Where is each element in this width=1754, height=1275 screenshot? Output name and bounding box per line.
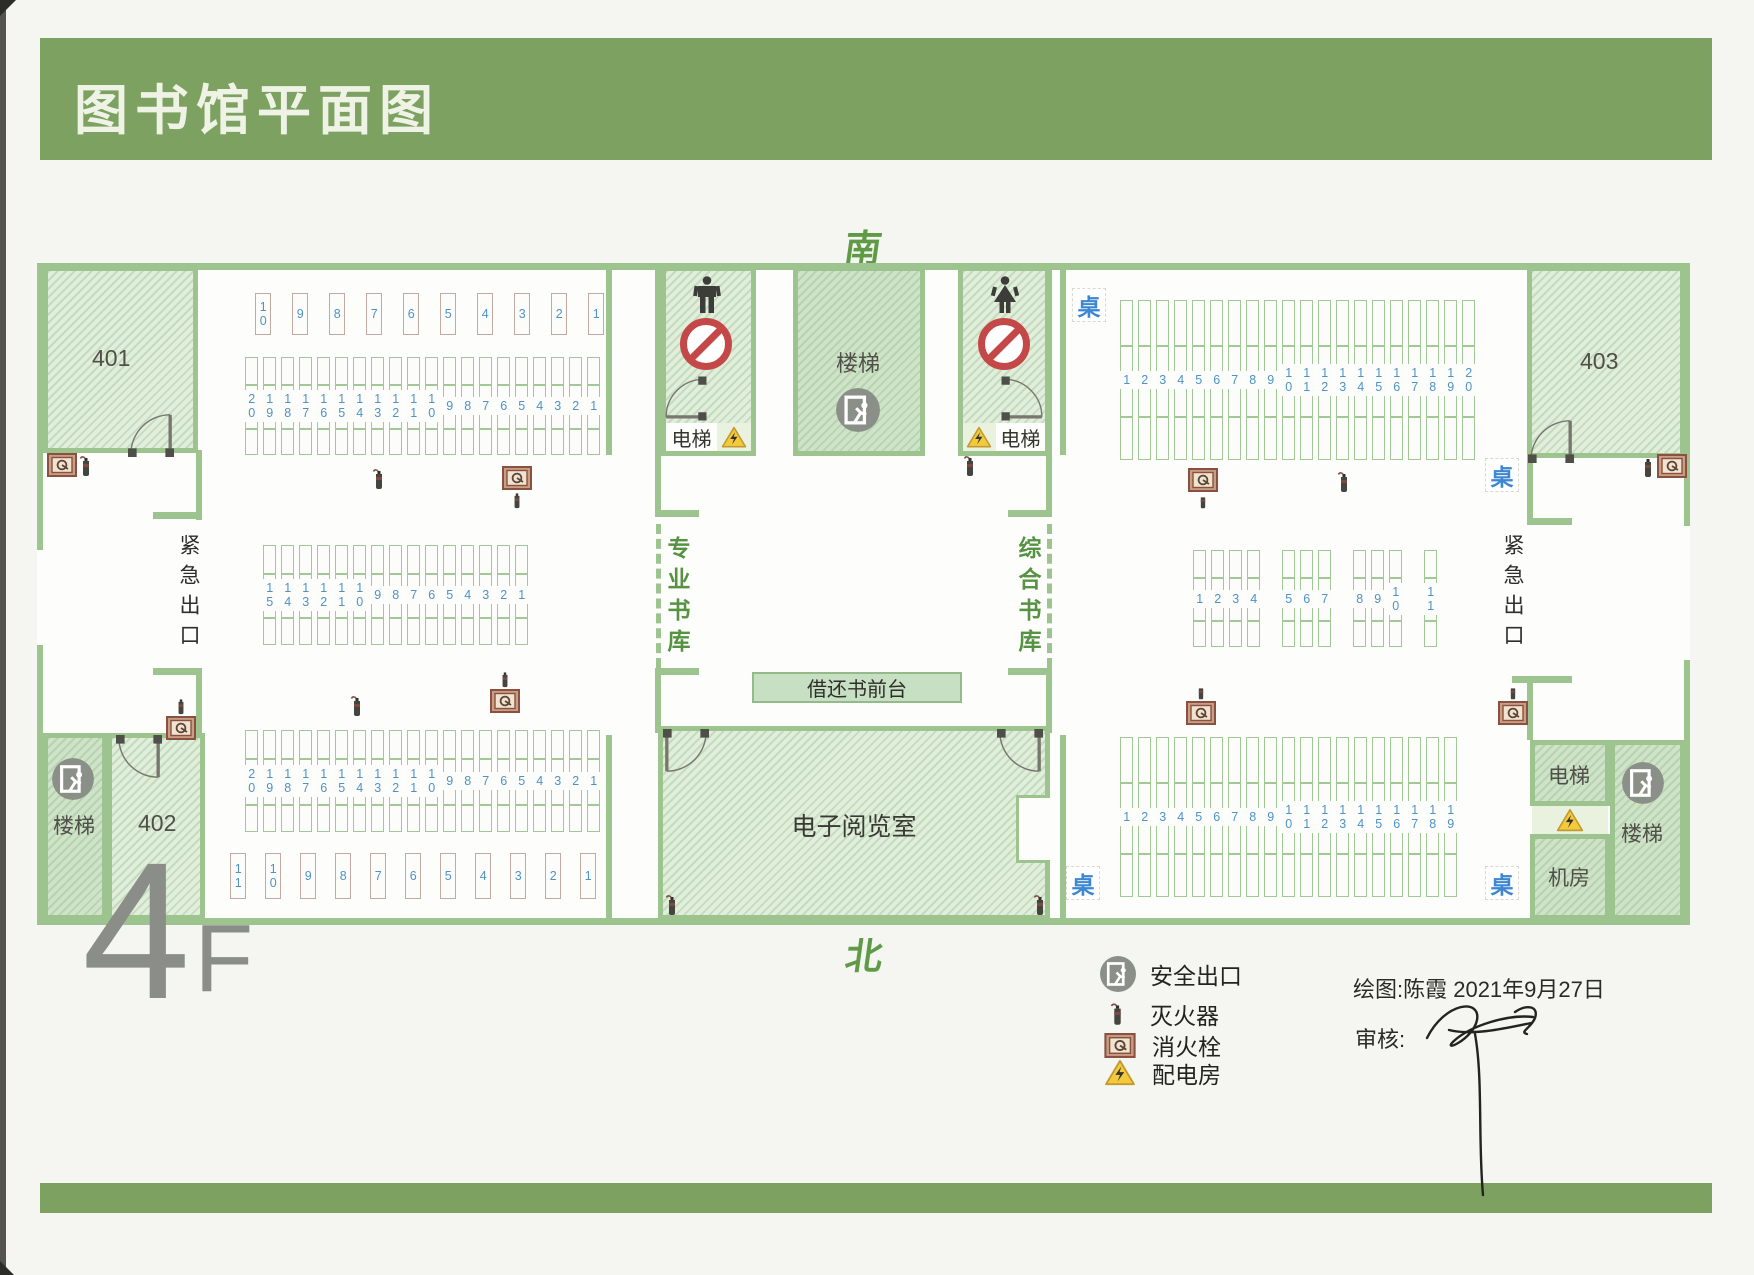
bookshelf-number: 2 bbox=[497, 586, 510, 604]
door-icon bbox=[116, 735, 162, 786]
bookshelf-19: 19 bbox=[1444, 300, 1457, 460]
bookshelf-number: 11 bbox=[1300, 364, 1313, 396]
bookshelf-number: 2 bbox=[569, 397, 582, 415]
bookshelf-8: 8 bbox=[1246, 737, 1259, 897]
bookshelf-number: 2 bbox=[1138, 808, 1151, 826]
bookshelf-2: 2 bbox=[1138, 737, 1151, 897]
bookshelf-number: 9 bbox=[371, 586, 384, 604]
bookshelf-number: 3 bbox=[1229, 590, 1242, 608]
right-shelf-row-1: 1234567891011121314151617181920 bbox=[1120, 300, 1475, 460]
bookshelf-number: 12 bbox=[1318, 364, 1331, 396]
bookshelf-15: 15 bbox=[263, 545, 276, 645]
bookshelf-7: 7 bbox=[370, 853, 386, 899]
left-wing-inner-wall-upper bbox=[606, 263, 612, 455]
bookshelf-number: 2 bbox=[569, 772, 582, 790]
fire-extinguisher-icon bbox=[510, 491, 524, 509]
female-icon bbox=[990, 276, 1020, 314]
bookshelf-number: 18 bbox=[1426, 801, 1439, 833]
bookshelf-number: 15 bbox=[1372, 801, 1385, 833]
left-corridor-wall-3 bbox=[153, 668, 202, 675]
bookshelf-3: 3 bbox=[1156, 300, 1169, 460]
bookshelf-11: 11 bbox=[1424, 550, 1437, 647]
bookshelf-number: 7 bbox=[407, 586, 420, 604]
bookshelf-number: 19 bbox=[263, 765, 276, 797]
bookshelf-number: 3 bbox=[516, 305, 529, 323]
bookshelf-11: 11 bbox=[1300, 300, 1313, 460]
bookshelf-number: 7 bbox=[1318, 590, 1331, 608]
bookshelf-number: 9 bbox=[302, 867, 315, 885]
bookshelf-number: 3 bbox=[1156, 371, 1169, 389]
bookshelf-16: 16 bbox=[317, 730, 330, 832]
right-shelf-row-2: 1234567891011 bbox=[1193, 550, 1437, 647]
left-shelf-row-3: 151413121110987654321 bbox=[263, 545, 528, 645]
bookshelf-number: 13 bbox=[299, 579, 312, 611]
fire-hydrant-icon bbox=[1188, 468, 1218, 492]
bookshelf-number: 14 bbox=[353, 765, 366, 797]
bookshelf-9: 9 bbox=[292, 293, 308, 335]
bookshelf-number: 11 bbox=[335, 579, 348, 611]
bookshelf-number: 6 bbox=[497, 772, 510, 790]
safety-exit-icon bbox=[1622, 762, 1664, 804]
bookshelf-number: 5 bbox=[1282, 590, 1295, 608]
fire-extinguisher-icon bbox=[498, 670, 512, 688]
scan-corner-bottom bbox=[0, 1261, 14, 1275]
fire-hydrant-icon bbox=[1498, 701, 1528, 725]
fire-hydrant-icon bbox=[47, 453, 77, 477]
legend-item-extinguisher: 灭火器 bbox=[1110, 997, 1219, 1031]
bookshelf-number: 17 bbox=[299, 390, 312, 422]
bookshelf-number: 20 bbox=[245, 765, 258, 797]
bookshelf-number: 8 bbox=[461, 772, 474, 790]
bookshelf-9: 9 bbox=[300, 853, 316, 899]
bookshelf-16: 16 bbox=[317, 357, 330, 455]
bookshelf-number: 10 bbox=[425, 390, 438, 422]
bookshelf-number: 16 bbox=[1390, 364, 1403, 396]
bookshelf-10: 10 bbox=[425, 357, 438, 455]
table-chip-nw: 桌 bbox=[1485, 458, 1519, 492]
left-shelf-row-bottom: 1110987654321 bbox=[230, 853, 596, 899]
bookshelf-number: 1 bbox=[515, 586, 528, 604]
bookshelf-number: 14 bbox=[281, 579, 294, 611]
elevator-left-label: 电梯 bbox=[666, 423, 717, 451]
bookshelf-5: 5 bbox=[515, 730, 528, 832]
elevator-right-label: 电梯 bbox=[996, 423, 1045, 451]
bookshelf-number: 4 bbox=[533, 397, 546, 415]
bookshelf-number: 1 bbox=[1120, 808, 1133, 826]
bookshelf-number: 4 bbox=[479, 305, 492, 323]
bookshelf-number: 4 bbox=[1247, 590, 1260, 608]
power-warning-icon bbox=[1556, 808, 1584, 833]
bookshelf-6: 6 bbox=[1210, 300, 1223, 460]
bookshelf-3: 3 bbox=[510, 853, 526, 899]
emergency-exit-label-east: 紧急出口 bbox=[178, 534, 199, 654]
bookshelf-4: 4 bbox=[533, 730, 546, 832]
bookshelf-16: 16 bbox=[1390, 300, 1403, 460]
bookshelf-10: 10 bbox=[1389, 550, 1402, 647]
bookshelf-number: 15 bbox=[263, 579, 276, 611]
bookshelf-18: 18 bbox=[281, 730, 294, 832]
fire-extinguisher-icon bbox=[963, 455, 977, 477]
bookshelf-3: 3 bbox=[551, 357, 564, 455]
gate-dashes-right bbox=[1047, 524, 1052, 668]
bookshelf-number: 7 bbox=[479, 397, 492, 415]
bookshelf-number: 20 bbox=[1462, 364, 1475, 396]
bookshelf-4: 4 bbox=[475, 853, 491, 899]
bookshelf-number: 1 bbox=[582, 867, 595, 885]
scan-edge bbox=[0, 0, 6, 1275]
bookshelf-number: 18 bbox=[1426, 364, 1439, 396]
bookshelf-12: 12 bbox=[389, 730, 402, 832]
bookshelf-number: 13 bbox=[371, 390, 384, 422]
bookshelf-13: 13 bbox=[299, 545, 312, 645]
power-warning-icon bbox=[721, 426, 747, 449]
power-warning-cell-sw bbox=[1532, 806, 1608, 834]
bookshelf-number: 14 bbox=[1354, 801, 1367, 833]
bookshelf-number: 19 bbox=[1444, 364, 1457, 396]
bookshelf-number: 17 bbox=[1408, 364, 1421, 396]
hydrant-extinguisher-stack bbox=[1188, 468, 1218, 509]
bookshelf-number: 11 bbox=[1300, 801, 1313, 833]
bookshelf-number: 13 bbox=[1336, 364, 1349, 396]
bookshelf-number: 9 bbox=[1371, 590, 1384, 608]
stairs-right-label: 楼梯 bbox=[1621, 818, 1663, 848]
bookshelf-3: 3 bbox=[1229, 550, 1242, 647]
left-corridor-wall-4 bbox=[196, 675, 202, 733]
bookshelf-number: 2 bbox=[1138, 371, 1151, 389]
bookshelf-9: 9 bbox=[371, 545, 384, 645]
bookshelf-number: 10 bbox=[1282, 364, 1295, 396]
bookshelf-number: 19 bbox=[1444, 801, 1457, 833]
bookshelf-9: 9 bbox=[443, 730, 456, 832]
bookshelf-number: 1 bbox=[590, 305, 603, 323]
bookshelf-number: 4 bbox=[1174, 808, 1187, 826]
center-left-wall-lower bbox=[655, 668, 661, 733]
bookshelf-5: 5 bbox=[440, 293, 456, 335]
door-icon bbox=[1528, 412, 1574, 463]
bookshelf-9: 9 bbox=[1264, 300, 1277, 460]
right-corridor-wall-2 bbox=[1527, 518, 1572, 525]
bookshelf-20: 20 bbox=[245, 730, 258, 832]
bookshelf-number: 6 bbox=[1210, 371, 1223, 389]
bookshelf-number: 16 bbox=[317, 765, 330, 797]
bookshelf-number: 16 bbox=[1390, 801, 1403, 833]
bookshelf-2: 2 bbox=[569, 730, 582, 832]
bookshelf-1: 1 bbox=[515, 545, 528, 645]
bookshelf-number: 11 bbox=[1424, 583, 1437, 615]
bookshelf-number: 10 bbox=[257, 298, 270, 330]
bookshelf-12: 12 bbox=[1318, 300, 1331, 460]
bookshelf-number: 4 bbox=[533, 772, 546, 790]
shelf-group: 11 bbox=[1424, 550, 1437, 647]
review-credit: 审核: bbox=[1355, 1022, 1405, 1054]
bookshelf-19: 19 bbox=[263, 357, 276, 455]
fire-extinguisher-icon bbox=[1033, 894, 1047, 916]
right-corridor-wall-1 bbox=[1527, 455, 1533, 525]
fire-hydrant-icon bbox=[1657, 454, 1687, 478]
power-warning-cell-left bbox=[717, 423, 751, 451]
hydrant-extinguisher-pair bbox=[47, 453, 93, 477]
bookshelf-number: 4 bbox=[477, 867, 490, 885]
bookshelf-number: 20 bbox=[245, 390, 258, 422]
bookshelf-number: 10 bbox=[1389, 583, 1402, 615]
door-icon bbox=[658, 377, 707, 421]
bookshelf-13: 13 bbox=[1336, 300, 1349, 460]
gate-label-professional-stacks: 专业书库 bbox=[665, 536, 688, 660]
bookshelf-8: 8 bbox=[335, 853, 351, 899]
bookshelf-number: 4 bbox=[461, 586, 474, 604]
bookshelf-6: 6 bbox=[497, 357, 510, 455]
bookshelf-14: 14 bbox=[353, 357, 366, 455]
bookshelf-6: 6 bbox=[425, 545, 438, 645]
power-warning-icon bbox=[966, 426, 992, 449]
reading-room-notch bbox=[1016, 795, 1050, 863]
bookshelf-6: 6 bbox=[1300, 550, 1313, 647]
fire-hydrant-icon bbox=[166, 716, 196, 740]
front-desk-label: 借还书前台 bbox=[807, 673, 907, 702]
bookshelf-number: 15 bbox=[335, 390, 348, 422]
bookshelf-14: 14 bbox=[281, 545, 294, 645]
fire-hydrant-icon bbox=[490, 689, 520, 713]
library-floor-plan-page: 图书馆平面图 南 北 东 西 401 402 楼梯 电梯 bbox=[0, 0, 1754, 1275]
fire-hydrant-icon bbox=[502, 466, 532, 490]
bookshelf-number: 11 bbox=[407, 390, 420, 422]
stairs-center-label: 楼梯 bbox=[836, 346, 880, 378]
fire-extinguisher-icon bbox=[372, 468, 386, 490]
bookshelf-7: 7 bbox=[1228, 737, 1241, 897]
fire-extinguisher-icon bbox=[1337, 471, 1351, 493]
no-smoking-icon bbox=[978, 318, 1030, 370]
bookshelf-number: 7 bbox=[479, 772, 492, 790]
bookshelf-6: 6 bbox=[1210, 737, 1223, 897]
bookshelf-12: 12 bbox=[389, 357, 402, 455]
bookshelf-4: 4 bbox=[533, 357, 546, 455]
bookshelf-3: 3 bbox=[551, 730, 564, 832]
bookshelf-number: 5 bbox=[443, 586, 456, 604]
bookshelf-1: 1 bbox=[1120, 300, 1133, 460]
left-corridor-wall-2 bbox=[153, 512, 202, 519]
bookshelf-number: 3 bbox=[551, 772, 564, 790]
bookshelf-5: 5 bbox=[443, 545, 456, 645]
center-left-stub-upper bbox=[661, 510, 699, 517]
bookshelf-10: 10 bbox=[265, 853, 281, 899]
fire-extinguisher-icon bbox=[350, 695, 364, 717]
bookshelf-17: 17 bbox=[299, 730, 312, 832]
bookshelf-1: 1 bbox=[1193, 550, 1206, 647]
bookshelf-number: 7 bbox=[1228, 371, 1241, 389]
shelf-group: 1234 bbox=[1193, 550, 1260, 647]
extinguisher-hydrant-stack bbox=[166, 697, 196, 740]
bookshelf-6: 6 bbox=[405, 853, 421, 899]
fire-extinguisher-icon bbox=[1196, 493, 1210, 509]
fire-extinguisher-icon bbox=[1194, 684, 1208, 700]
fire-extinguisher-icon bbox=[665, 894, 679, 916]
bookshelf-12: 12 bbox=[317, 545, 330, 645]
front-desk: 借还书前台 bbox=[752, 672, 962, 703]
bookshelf-number: 1 bbox=[1193, 590, 1206, 608]
right-shelf-row-3: 12345678910111213141516171819 bbox=[1120, 737, 1457, 897]
bookshelf-1: 1 bbox=[1120, 737, 1133, 897]
scan-corner-top bbox=[0, 0, 16, 16]
bookshelf-number: 17 bbox=[1408, 801, 1421, 833]
extinguisher-hydrant-stack bbox=[490, 670, 520, 713]
bookshelf-number: 8 bbox=[461, 397, 474, 415]
e-reading-room-label: 电子阅览室 bbox=[663, 807, 1045, 843]
bookshelf-number: 8 bbox=[337, 867, 350, 885]
bookshelf-number: 2 bbox=[1211, 590, 1224, 608]
bookshelf-number: 6 bbox=[497, 397, 510, 415]
bookshelf-number: 18 bbox=[281, 390, 294, 422]
bookshelf-4: 4 bbox=[477, 293, 493, 335]
bookshelf-2: 2 bbox=[569, 357, 582, 455]
bookshelf-number: 1 bbox=[587, 772, 600, 790]
center-right-wall-lower bbox=[1046, 668, 1052, 733]
bookshelf-12: 12 bbox=[1318, 737, 1331, 897]
bookshelf-number: 7 bbox=[368, 305, 381, 323]
center-right-stub-lower bbox=[1008, 668, 1046, 675]
bookshelf-13: 13 bbox=[1336, 737, 1349, 897]
bookshelf-number: 14 bbox=[353, 390, 366, 422]
e-reading-room: 电子阅览室 bbox=[658, 726, 1050, 920]
door-icon bbox=[663, 729, 709, 780]
emergency-exit-label-west: 紧急出口 bbox=[1502, 534, 1523, 654]
floor-number-digit: 4 bbox=[82, 842, 190, 1021]
bookshelf-number: 9 bbox=[294, 305, 307, 323]
bookshelf-10: 10 bbox=[353, 545, 366, 645]
bookshelf-16: 16 bbox=[1390, 737, 1403, 897]
fire-hydrant-icon bbox=[1186, 701, 1216, 725]
bookshelf-7: 7 bbox=[366, 293, 382, 335]
table-chip-sw: 桌 bbox=[1485, 866, 1519, 900]
bookshelf-number: 15 bbox=[335, 765, 348, 797]
bookshelf-number: 3 bbox=[551, 397, 564, 415]
bookshelf-number: 15 bbox=[1372, 364, 1385, 396]
bookshelf-number: 5 bbox=[1192, 371, 1205, 389]
power-warning-cell-right bbox=[963, 423, 996, 451]
bookshelf-7: 7 bbox=[407, 545, 420, 645]
elevator-right-strip: 电梯 bbox=[963, 423, 1045, 451]
table-chip-ne: 桌 bbox=[1072, 288, 1106, 322]
compass-north: 北 bbox=[842, 926, 887, 980]
bookshelf-number: 5 bbox=[515, 397, 528, 415]
bookshelf-6: 6 bbox=[497, 730, 510, 832]
legend-item-safety-exit: 安全出口 bbox=[1100, 956, 1242, 992]
bookshelf-5: 5 bbox=[1192, 737, 1205, 897]
bookshelf-7: 7 bbox=[1228, 300, 1241, 460]
bookshelf-9: 9 bbox=[1371, 550, 1384, 647]
bookshelf-2: 2 bbox=[551, 293, 567, 335]
bookshelf-number: 11 bbox=[232, 860, 245, 892]
bookshelf-10: 10 bbox=[425, 730, 438, 832]
bookshelf-number: 8 bbox=[389, 586, 402, 604]
bookshelf-number: 8 bbox=[1246, 808, 1259, 826]
bookshelf-8: 8 bbox=[461, 730, 474, 832]
bookshelf-17: 17 bbox=[1408, 300, 1421, 460]
bookshelf-number: 8 bbox=[1246, 371, 1259, 389]
bookshelf-17: 17 bbox=[1408, 737, 1421, 897]
bookshelf-3: 3 bbox=[1156, 737, 1169, 897]
bookshelf-1: 1 bbox=[587, 357, 600, 455]
left-shelf-row-2: 2019181716151413121110987654321 bbox=[245, 357, 600, 455]
elevator-left-strip: 电梯 bbox=[666, 423, 751, 451]
bookshelf-2: 2 bbox=[545, 853, 561, 899]
bookshelf-number: 17 bbox=[299, 765, 312, 797]
safety-exit-icon bbox=[1100, 956, 1136, 992]
bookshelf-10: 10 bbox=[255, 293, 271, 335]
legend-label: 灭火器 bbox=[1150, 997, 1219, 1031]
shelf-group: 567 bbox=[1282, 550, 1331, 647]
center-left-stub-lower bbox=[661, 668, 699, 675]
bookshelf-8: 8 bbox=[461, 357, 474, 455]
bookshelf-8: 8 bbox=[1353, 550, 1366, 647]
bookshelf-2: 2 bbox=[1211, 550, 1224, 647]
bookshelf-number: 12 bbox=[389, 390, 402, 422]
bookshelf-1: 1 bbox=[580, 853, 596, 899]
bookshelf-1: 1 bbox=[587, 730, 600, 832]
no-smoking-icon bbox=[680, 318, 732, 370]
bookshelf-15: 15 bbox=[335, 730, 348, 832]
bookshelf-number: 4 bbox=[1174, 371, 1187, 389]
bookshelf-number: 6 bbox=[425, 586, 438, 604]
hydrant-extinguisher-stack bbox=[502, 466, 532, 509]
bookshelf-number: 11 bbox=[407, 765, 420, 797]
bookshelf-number: 6 bbox=[405, 305, 418, 323]
left-shelf-row-4: 2019181716151413121110987654321 bbox=[245, 730, 600, 832]
bookshelf-number: 19 bbox=[263, 390, 276, 422]
bookshelf-number: 9 bbox=[443, 397, 456, 415]
bookshelf-number: 6 bbox=[1300, 590, 1313, 608]
bookshelf-10: 10 bbox=[1282, 737, 1295, 897]
bookshelf-19: 19 bbox=[263, 730, 276, 832]
table-chip-se: 桌 bbox=[1066, 866, 1100, 900]
extinguisher-hydrant-stack bbox=[1186, 684, 1216, 725]
bookshelf-number: 2 bbox=[553, 305, 566, 323]
bookshelf-number: 9 bbox=[1264, 371, 1277, 389]
bookshelf-8: 8 bbox=[389, 545, 402, 645]
bookshelf-7: 7 bbox=[1318, 550, 1331, 647]
bookshelf-number: 8 bbox=[331, 305, 344, 323]
bookshelf-number: 14 bbox=[1354, 364, 1367, 396]
bookshelf-number: 1 bbox=[1120, 371, 1133, 389]
bookshelf-number: 12 bbox=[1318, 801, 1331, 833]
fire-extinguisher-icon bbox=[1641, 456, 1655, 478]
bookshelf-15: 15 bbox=[1372, 300, 1385, 460]
left-wing-inner-wall-lower bbox=[606, 735, 612, 918]
fire-extinguisher-icon bbox=[1506, 684, 1520, 700]
bookshelf-number: 10 bbox=[353, 579, 366, 611]
bookshelf-2: 2 bbox=[497, 545, 510, 645]
bookshelf-number: 12 bbox=[389, 765, 402, 797]
safety-exit-icon bbox=[52, 758, 94, 800]
bookshelf-number: 5 bbox=[442, 305, 455, 323]
bookshelf-3: 3 bbox=[514, 293, 530, 335]
bookshelf-number: 2 bbox=[547, 867, 560, 885]
fire-extinguisher-icon bbox=[174, 697, 188, 715]
bookshelf-18: 18 bbox=[281, 357, 294, 455]
center-right-stub-upper bbox=[1008, 510, 1046, 517]
gate-dashes-left bbox=[656, 524, 661, 668]
door-icon bbox=[128, 406, 174, 457]
bookshelf-18: 18 bbox=[1426, 300, 1439, 460]
door-icon bbox=[997, 729, 1043, 780]
bookshelf-8: 8 bbox=[329, 293, 345, 335]
bookshelf-5: 5 bbox=[1192, 300, 1205, 460]
bookshelf-7: 7 bbox=[479, 357, 492, 455]
bookshelf-number: 16 bbox=[317, 390, 330, 422]
bookshelf-2: 2 bbox=[1138, 300, 1151, 460]
floor-number: 4 F bbox=[82, 842, 253, 1021]
left-corridor-wall-1 bbox=[196, 450, 202, 520]
legend-label: 配电房 bbox=[1152, 1056, 1221, 1090]
